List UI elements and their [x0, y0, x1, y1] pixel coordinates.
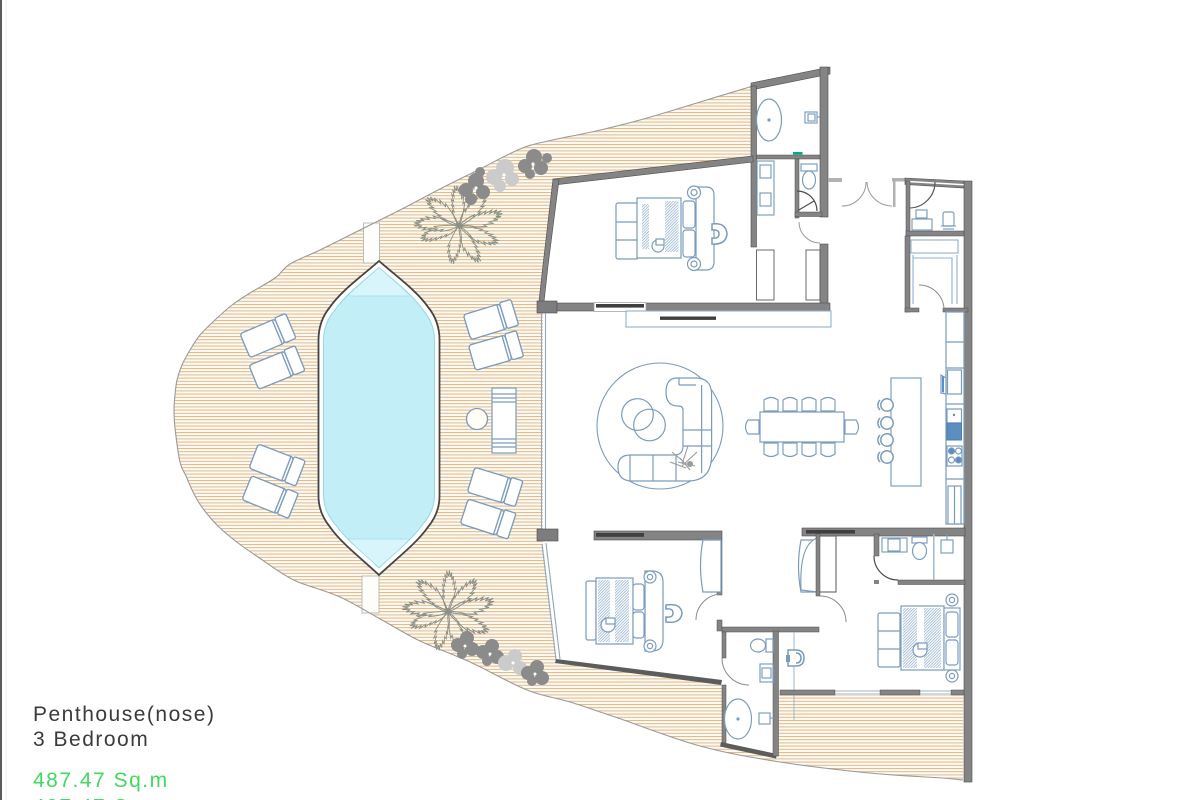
svg-text:3 Bedroom: 3 Bedroom — [33, 728, 149, 751]
svg-text:487.47 Sq.m: 487.47 Sq.m — [33, 796, 169, 800]
svg-text:Penthouse(nose): Penthouse(nose) — [33, 703, 215, 726]
svg-text:487.47 Sq.m: 487.47 Sq.m — [33, 769, 169, 792]
